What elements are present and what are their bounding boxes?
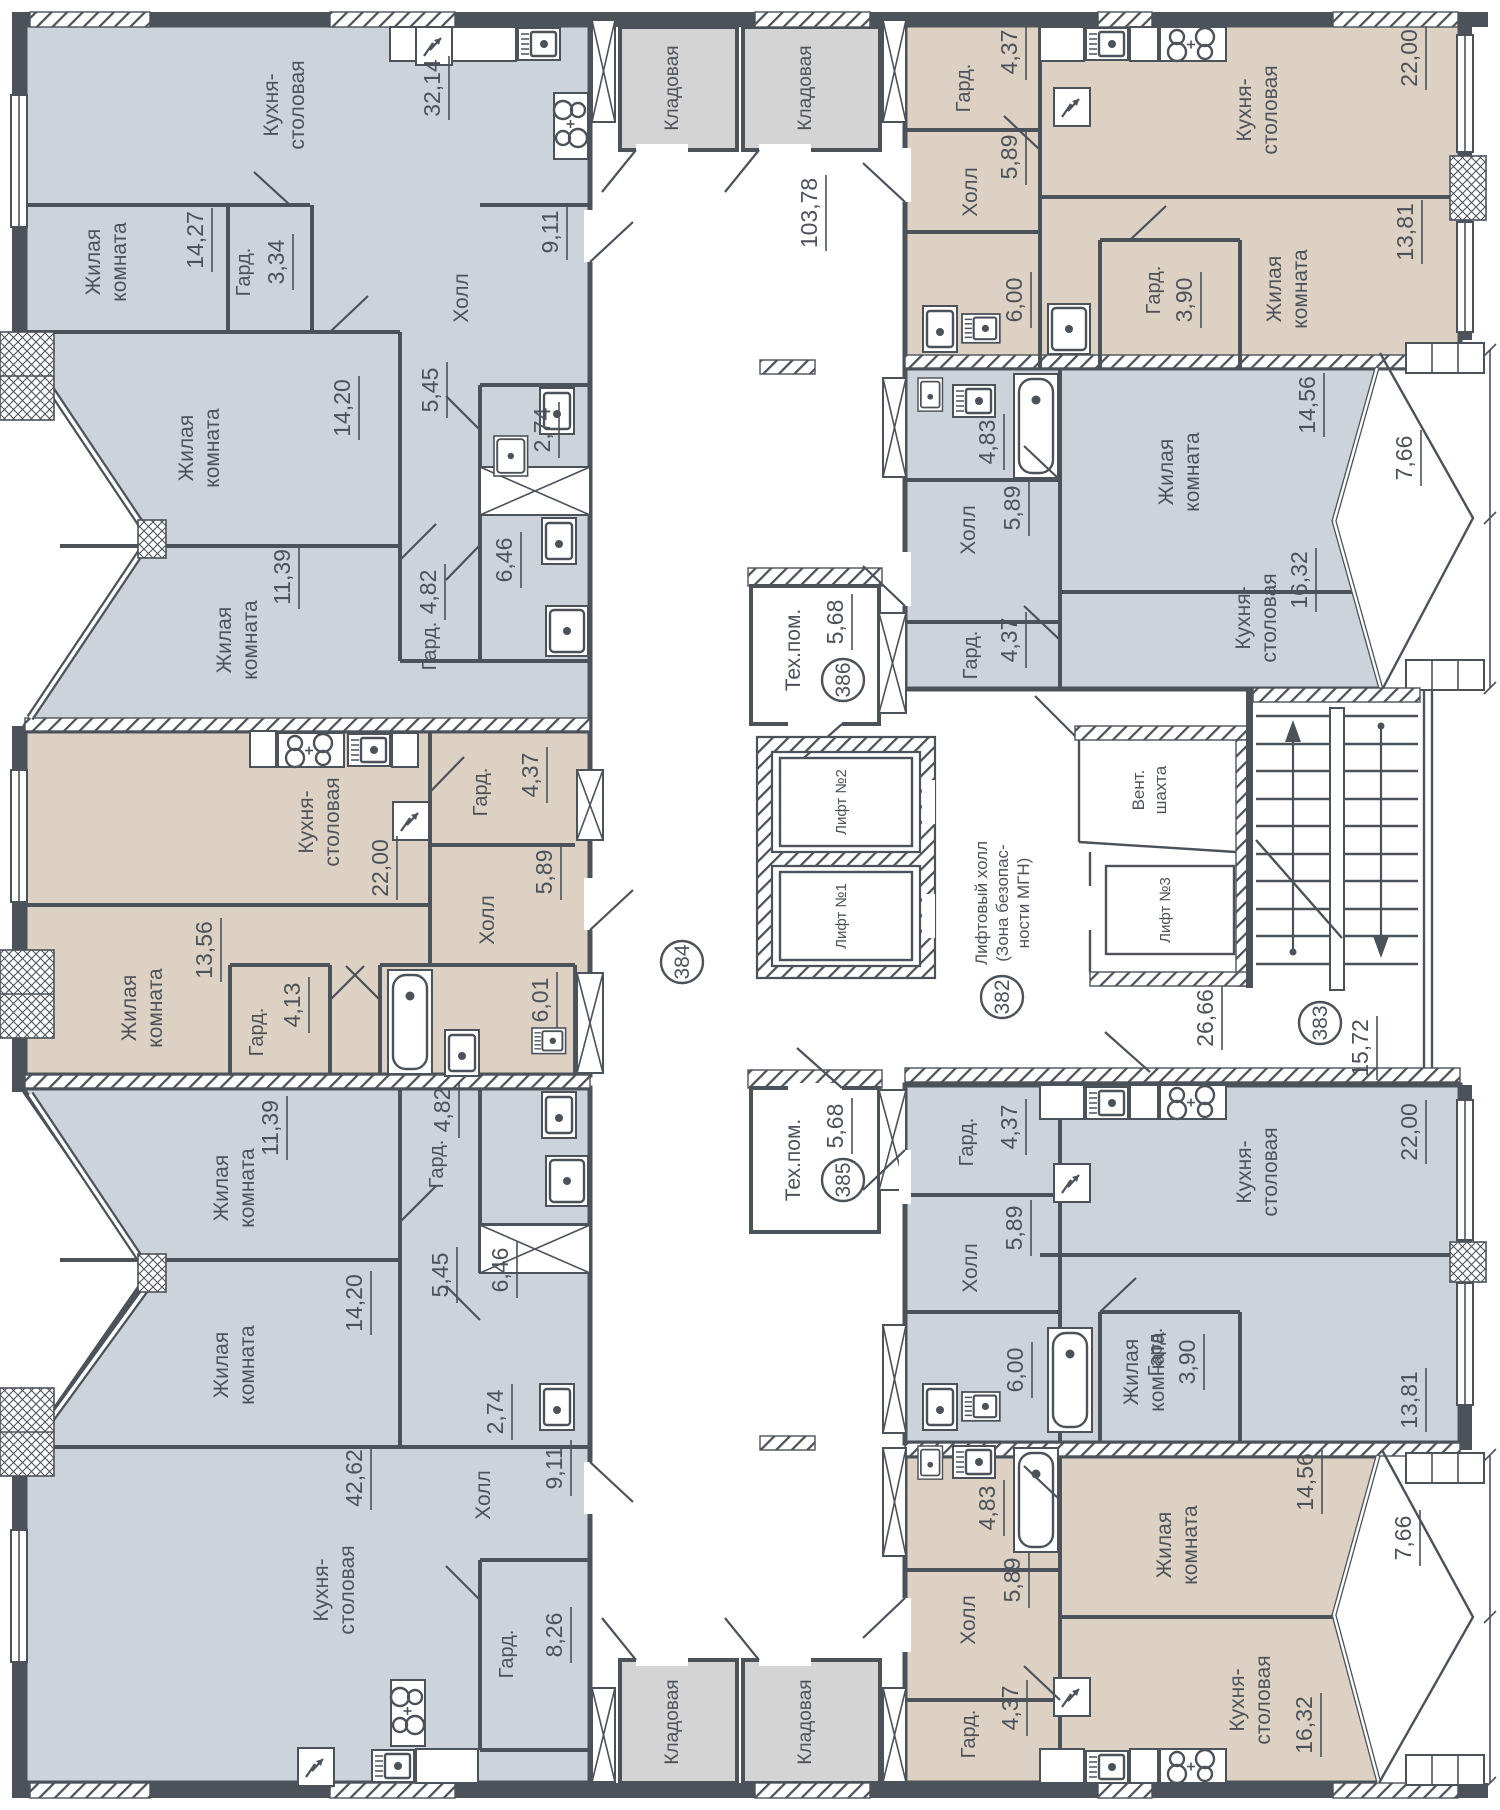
lift-label: Лифт №2 xyxy=(833,769,850,835)
room-area: 22,00 xyxy=(367,839,393,897)
room-area: 9,11 xyxy=(541,1446,567,1489)
room-label: Холл xyxy=(476,895,499,945)
room-label: столовая xyxy=(286,60,309,149)
room-area: 3,90 xyxy=(1174,1340,1200,1385)
room-area: 8,26 xyxy=(541,1613,567,1658)
room-area: 5,45 xyxy=(427,1253,453,1298)
lift-label: Лифт №3 xyxy=(1157,877,1174,943)
room-area: 14,27 xyxy=(182,211,208,269)
room-label: столовая xyxy=(1259,65,1282,154)
apartment-bottom-right-upper xyxy=(905,1085,1460,1443)
room-label: комната xyxy=(239,600,262,680)
room-label: Холл xyxy=(450,273,473,323)
room-label: комната xyxy=(1181,432,1204,512)
lift-hall-label: (Зона безопас- xyxy=(993,844,1012,961)
room-label: Холл xyxy=(959,167,982,217)
badge-385: 385 xyxy=(822,1159,864,1201)
room-label: Жилая xyxy=(82,229,105,295)
room-label: Жилая xyxy=(118,975,141,1041)
badge-number: 386 xyxy=(832,662,855,697)
room-area: 4,82 xyxy=(429,1088,455,1133)
room-area: 13,56 xyxy=(191,921,217,979)
room-area: 5,68 xyxy=(822,1104,848,1149)
badge-number: 382 xyxy=(991,979,1014,1014)
room-area: 9,11 xyxy=(537,210,563,253)
lift-hall-label: ности МГН) xyxy=(1014,858,1033,949)
room-label: столовая xyxy=(336,1545,359,1634)
room-label: комната xyxy=(1146,1332,1169,1412)
room-label: Тех.пом. xyxy=(782,1119,805,1202)
room-area: 6,00 xyxy=(1002,1348,1028,1393)
room-label: Гард. xyxy=(419,622,441,671)
badge-386: 386 xyxy=(822,659,864,701)
room-area: 14,56 xyxy=(1294,376,1320,434)
room-area: 32,14 xyxy=(419,59,445,117)
room-area: 4,37 xyxy=(996,618,1022,663)
balcony-area: 7,66 xyxy=(1390,1516,1416,1561)
lift-hall-label: Лифтовый холл xyxy=(972,841,991,965)
area-label: 15,72 xyxy=(1347,1019,1373,1077)
storage-label: Кладовая xyxy=(662,1679,683,1764)
lift-label: Лифт №1 xyxy=(833,883,850,949)
room-area: 11,39 xyxy=(257,1100,283,1156)
stairs xyxy=(1246,688,1420,990)
room-label: Холл xyxy=(959,1243,982,1293)
room-label: Жилая xyxy=(1155,439,1178,505)
room-label: Кухня- xyxy=(1233,78,1256,141)
room-label: комната xyxy=(1179,1505,1202,1585)
room-area: 2,74 xyxy=(529,407,555,452)
room-area: 6,00 xyxy=(1001,278,1027,323)
room-label: Холл xyxy=(957,505,980,555)
room-area: 13,81 xyxy=(1396,1371,1422,1429)
storage-label: Кладовая xyxy=(662,45,683,130)
room-label: комната xyxy=(144,968,167,1048)
room-area: 4,37 xyxy=(997,1686,1023,1731)
storage-label: Кладовая xyxy=(795,1679,816,1764)
room-label: столовая xyxy=(1252,1655,1275,1744)
room-label: Гард. xyxy=(958,1710,980,1759)
room-label: Жилая xyxy=(1153,1512,1176,1578)
room-label: комната xyxy=(201,408,224,488)
room-label: комната xyxy=(236,1148,259,1228)
room-label: Гард. xyxy=(496,1630,518,1679)
room-area: 5,89 xyxy=(531,850,557,895)
badge-number: 385 xyxy=(832,1162,855,1197)
room-label: столовая xyxy=(321,777,344,866)
room-label: комната xyxy=(1289,249,1312,329)
room-label: Жилая xyxy=(210,1332,233,1398)
room-label: Жилая xyxy=(175,415,198,481)
room-area: 4,37 xyxy=(517,753,543,798)
room-area: 4,37 xyxy=(996,1105,1022,1150)
room-label: Гард. xyxy=(960,631,982,680)
room-area: 14,20 xyxy=(329,379,355,437)
balcony-area: 7,66 xyxy=(1391,436,1417,481)
room-area: 14,56 xyxy=(1292,1453,1318,1511)
room-area: 22,00 xyxy=(1396,29,1422,87)
room-label: Гард. xyxy=(956,1118,978,1167)
room-label: Кухня- xyxy=(1226,1668,1249,1731)
vent-label: Вент. xyxy=(1129,770,1148,811)
room-label: Тех.пом. xyxy=(782,609,805,692)
room-area: 4,82 xyxy=(415,570,441,615)
room-label: Гард. xyxy=(246,1008,268,1057)
room-label: Кухня- xyxy=(310,1558,333,1621)
tech-room-386 xyxy=(751,586,879,724)
room-label: Кухня- xyxy=(295,790,318,853)
area-label: 26,66 xyxy=(1192,989,1218,1047)
room-label: Гард. xyxy=(426,1140,448,1189)
room-area: 13,81 xyxy=(1392,203,1418,261)
room-area: 22,00 xyxy=(1396,1103,1422,1161)
room-label: столовая xyxy=(1258,573,1281,662)
room-area: 6,46 xyxy=(487,1248,513,1293)
badge-382: 382 xyxy=(981,976,1023,1018)
room-label: Гард. xyxy=(233,248,255,297)
room-area: 3,90 xyxy=(1171,278,1197,323)
room-area: 6,46 xyxy=(491,538,517,583)
room-label: Кухня- xyxy=(260,73,283,136)
room-label: Жилая xyxy=(1120,1339,1143,1405)
room-label: комната xyxy=(108,222,131,302)
badge-number: 384 xyxy=(671,944,694,979)
room-label: Гард. xyxy=(470,768,492,817)
room-area: 5,45 xyxy=(417,368,443,413)
room-area: 5,89 xyxy=(996,135,1022,180)
room-area: 5,89 xyxy=(999,486,1025,531)
badge-384: 384 xyxy=(661,941,703,983)
room-label: Холл xyxy=(472,1470,495,1520)
floor-plan: Кухня-столовая 32,14 Жилаякомната 14,27 … xyxy=(0,0,1500,1810)
room-label: Холл xyxy=(957,1595,980,1645)
room-label: Кухня- xyxy=(1233,1140,1256,1203)
room-area: 5,68 xyxy=(822,600,848,645)
room-area: 14,20 xyxy=(341,1274,367,1332)
badge-383: 383 xyxy=(1299,1002,1341,1044)
room-label: комната xyxy=(236,1325,259,1405)
room-area: 16,32 xyxy=(1286,551,1312,609)
room-area: 3,34 xyxy=(263,239,289,284)
room-label: столовая xyxy=(1259,1127,1282,1216)
room-area: 11,39 xyxy=(269,549,295,605)
room-area: 4,83 xyxy=(974,420,1000,465)
room-area: 2,74 xyxy=(482,1389,508,1434)
room-area: 42,62 xyxy=(341,1449,367,1507)
room-label: Жилая xyxy=(1263,256,1286,322)
badge-number: 383 xyxy=(1309,1005,1332,1040)
room-area: 6,01 xyxy=(527,978,553,1023)
storage-label: Кладовая xyxy=(795,45,816,130)
room-area: 16,32 xyxy=(1291,1696,1317,1754)
room-label: Гард. xyxy=(1143,266,1165,315)
room-label: Кухня- xyxy=(1232,586,1255,649)
room-label: Жилая xyxy=(213,607,236,673)
tech-room-385 xyxy=(751,1088,879,1232)
room-area: 4,37 xyxy=(996,30,1022,75)
room-area: 5,89 xyxy=(1001,1206,1027,1251)
vent-label: шахта xyxy=(1151,765,1170,814)
room-area: 5,89 xyxy=(999,1558,1025,1603)
corridor-area: 103,78 xyxy=(796,178,822,248)
room-label: Жилая xyxy=(210,1155,233,1221)
room-area: 4,13 xyxy=(279,983,305,1028)
room-label: Гард. xyxy=(953,64,975,113)
room-area: 4,83 xyxy=(974,1486,1000,1531)
